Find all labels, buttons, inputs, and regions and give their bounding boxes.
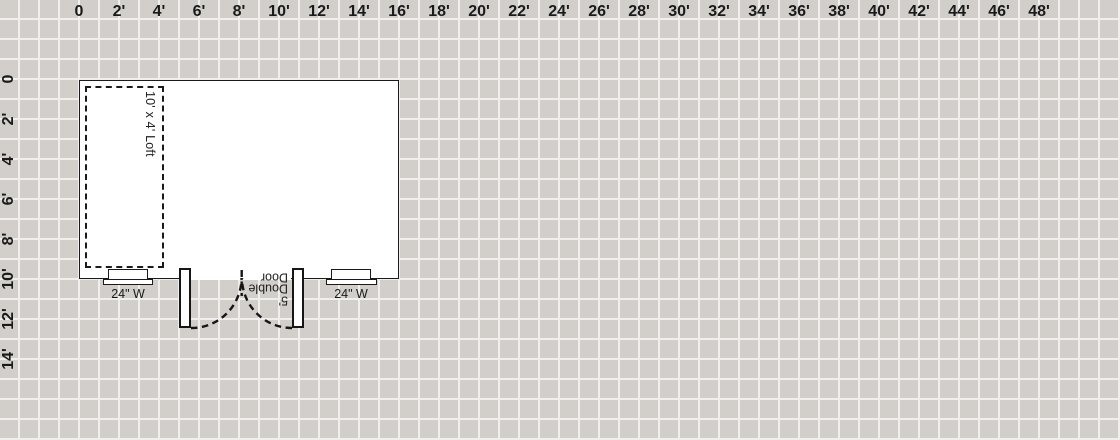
ruler-top-label: 2' (113, 3, 126, 21)
door-label: 5' Double Door (246, 271, 288, 306)
ruler-top-label: 26' (588, 3, 610, 21)
ruler-left-label: 14' (0, 348, 18, 370)
door-swing-arc-left (191, 278, 242, 328)
ruler-top-label: 0 (75, 3, 84, 21)
door-leaf-left[interactable] (179, 268, 191, 328)
ruler-left-label: 10' (0, 268, 18, 290)
ruler-top-label: 18' (428, 3, 450, 21)
loft-label: 10' x 4' Loft (143, 91, 157, 157)
ruler-top-label: 24' (548, 3, 570, 21)
ruler-left-label: 8' (0, 233, 18, 246)
door-leaf-right[interactable] (292, 268, 304, 328)
floorplan-canvas[interactable]: 02'4'6'8'10'12'14'16'18'20'22'24'26'28'3… (0, 0, 1120, 440)
ruler-top-label: 6' (193, 3, 206, 21)
ruler-top-label: 20' (468, 3, 490, 21)
ruler-top-label: 42' (908, 3, 930, 21)
ruler-left-label: 12' (0, 308, 18, 330)
ruler-top-label: 46' (988, 3, 1010, 21)
ruler-top-label: 22' (508, 3, 530, 21)
window-left-sill[interactable] (103, 279, 153, 286)
window-right-label: 24" W (334, 287, 368, 301)
window-left-label: 24" W (111, 287, 145, 301)
ruler-top-label: 12' (308, 3, 330, 21)
ruler-left-label: 2' (0, 113, 18, 126)
ruler-top-label: 44' (948, 3, 970, 21)
ruler-top-label: 8' (233, 3, 246, 21)
ruler-top-label: 48' (1028, 3, 1050, 21)
ruler-top-label: 32' (708, 3, 730, 21)
ruler-left-label: 4' (0, 153, 18, 166)
ruler-left-label: 6' (0, 193, 18, 206)
window-right-sill[interactable] (326, 279, 377, 286)
ruler-top-label: 16' (388, 3, 410, 21)
ruler-top-label: 14' (348, 3, 370, 21)
ruler-top-label: 36' (788, 3, 810, 21)
ruler-top-label: 4' (153, 3, 166, 21)
ruler-top-label: 28' (628, 3, 650, 21)
ruler-top-label: 38' (828, 3, 850, 21)
ruler-top-label: 10' (268, 3, 290, 21)
ruler-left-label: 0 (0, 75, 18, 84)
ruler-top-label: 34' (748, 3, 770, 21)
ruler-top-label: 40' (868, 3, 890, 21)
ruler-top-label: 30' (668, 3, 690, 21)
